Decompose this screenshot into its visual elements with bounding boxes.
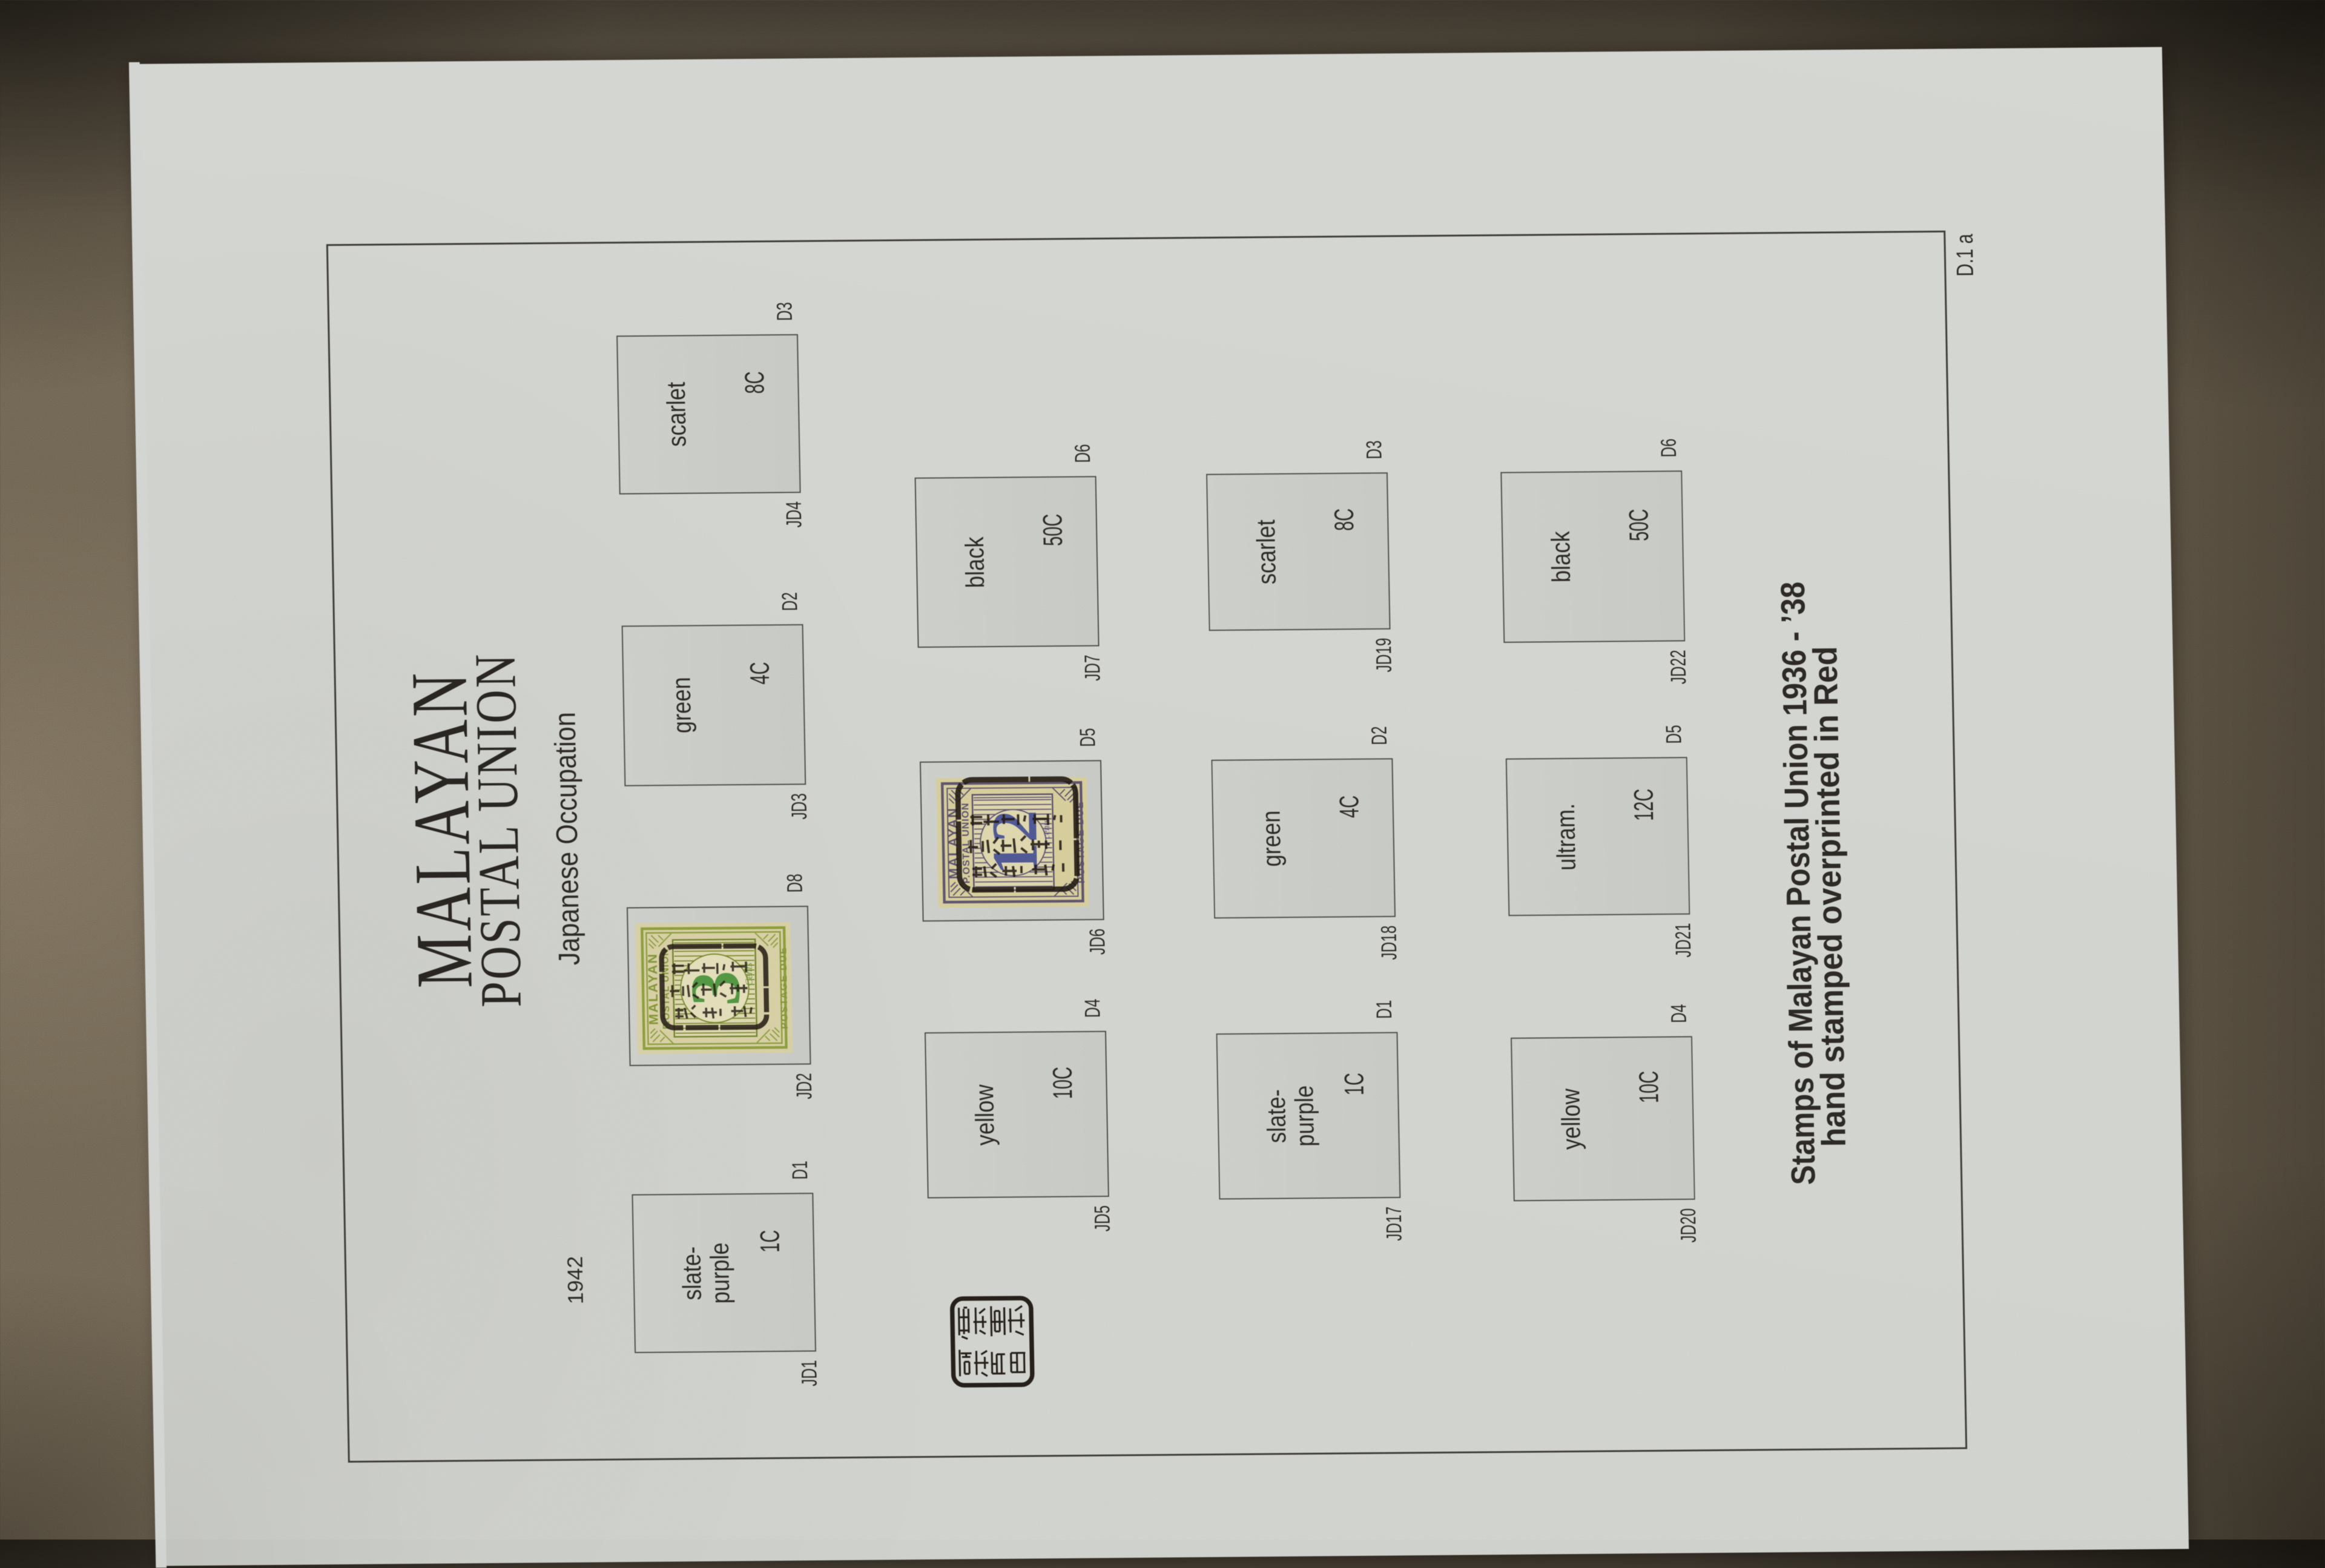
svg-text:cents: cents [1041,819,1052,839]
svg-text:POSTAGE DUE: POSTAGE DUE [779,946,790,1029]
svg-text:MALAYAN: MALAYAN [645,953,661,1025]
